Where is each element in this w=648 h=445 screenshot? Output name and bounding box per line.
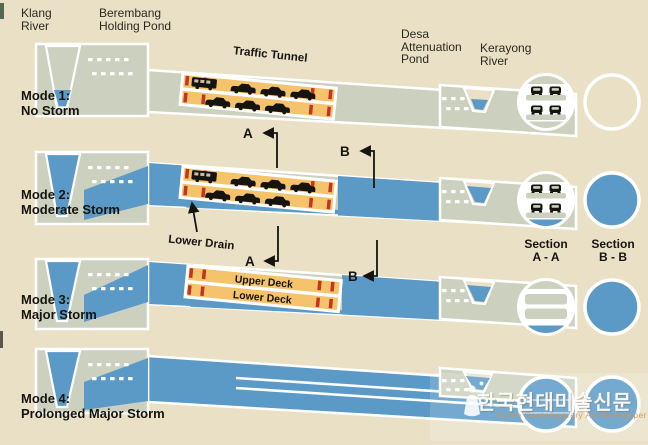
smart-tunnel-diagram: Upper Deck Lower Deck — [0, 0, 648, 445]
cut-line-a-top — [264, 133, 277, 168]
label-desa-attenuation-pond: Desa Attenuation Pond — [401, 28, 462, 66]
diagram-canvas: Upper Deck Lower Deck — [0, 0, 648, 445]
section-aa-mode3 — [518, 279, 574, 335]
section-bb-mode2 — [585, 173, 639, 227]
gate-dashes — [442, 97, 465, 100]
traffic-tunnel-label: Traffic Tunnel — [233, 45, 308, 65]
section-bb-sub: B - B — [599, 250, 627, 264]
label-mode-4: Mode 4: Prolonged Major Storm — [21, 392, 165, 421]
gate-dashes — [446, 107, 469, 110]
cut-line-a-bottom — [265, 226, 278, 261]
label-mode-2: Mode 2: Moderate Storm — [21, 188, 120, 217]
section-bb-mode3 — [585, 280, 639, 334]
section-bb-mode1 — [585, 75, 639, 129]
mode-1-row — [36, 44, 639, 136]
label-mode-3: Mode 3: Major Storm — [21, 293, 97, 322]
lower-drain-label: Lower Drain — [168, 234, 235, 253]
scan-artifact — [0, 331, 3, 348]
cut-line-b-bottom — [364, 240, 377, 276]
gate-dashes — [442, 190, 465, 193]
marker-a-top: A — [243, 126, 253, 141]
mode-2-row — [36, 152, 639, 229]
gate-dashes — [446, 299, 469, 302]
section-aa-sub: A - A — [532, 250, 559, 264]
label-berembang-holding-pond: Berembang Holding Pond — [99, 7, 171, 32]
label-kerayong-river: Kerayong River — [480, 42, 531, 67]
section-aa-mode1 — [518, 74, 574, 130]
label-mode-1: Mode 1: No Storm — [21, 89, 80, 118]
marker-b-bottom: B — [348, 269, 358, 284]
marker-b-top: B — [340, 144, 350, 159]
watermark-english: Korea Contemporary Art Newspaper — [497, 410, 647, 420]
gate-dashes — [442, 289, 465, 292]
section-aa-mode2 — [518, 172, 574, 228]
gate-dashes — [446, 200, 469, 203]
mode-3-row: Upper Deck Lower Deck — [36, 259, 639, 335]
scan-artifact — [0, 3, 4, 19]
section-aa-title: Section — [524, 237, 567, 251]
section-bb-title: Section — [591, 237, 634, 251]
label-klang-river: Klang River — [21, 7, 52, 32]
marker-a-bottom: A — [245, 254, 255, 269]
